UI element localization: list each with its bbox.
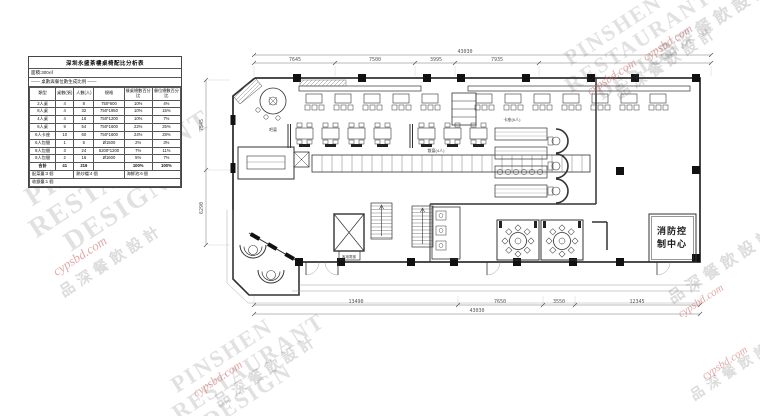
plan-rect xyxy=(533,105,538,110)
table-cell: 8 xyxy=(74,100,94,108)
table-footer-cell: 收銀臺:1 個 xyxy=(30,178,181,186)
column xyxy=(631,74,639,82)
plan-rect xyxy=(495,128,547,140)
plan-rect xyxy=(341,105,346,110)
plan-rect xyxy=(550,247,556,253)
plan-circle xyxy=(256,108,260,112)
plan-rect xyxy=(238,147,294,179)
table-row: 4人桌416750*120010%7% xyxy=(30,116,181,124)
plan-rect xyxy=(333,140,338,144)
plan-rect xyxy=(482,105,487,110)
plan-circle xyxy=(554,233,571,250)
plan-rect xyxy=(399,105,404,110)
table-cell: 6 xyxy=(74,139,94,147)
plan-rect xyxy=(377,144,388,147)
plan-rect xyxy=(455,140,460,144)
plan-rect xyxy=(476,94,492,103)
plan-line xyxy=(251,234,260,239)
plan-rect xyxy=(348,105,353,110)
plan-rect xyxy=(374,128,391,139)
plan-rect xyxy=(568,229,574,235)
plan-rect xyxy=(541,220,583,260)
plan-rect xyxy=(333,123,338,127)
cad-sheet: 深圳永盛茶樓桌椅配比分析表 面積:300㎡ —— 桌數與餐位數生成比例 —— 類… xyxy=(0,0,760,416)
analysis-table: 深圳永盛茶樓桌椅配比分析表 面積:300㎡ —— 桌數與餐位數生成比例 —— 類… xyxy=(28,56,182,188)
column xyxy=(231,163,236,173)
column xyxy=(513,258,521,266)
floor-plan: 43030 7645 7500 3995 7935 13490 7650 355… xyxy=(195,15,760,345)
column xyxy=(587,74,595,82)
table-footer-cell: 海鮮池:6 個 xyxy=(124,171,180,179)
column xyxy=(231,115,236,125)
table4-label: 散臺(4人) xyxy=(428,147,446,153)
plan-rect xyxy=(540,105,545,110)
plan-rect xyxy=(620,105,625,110)
plan-rect xyxy=(319,105,324,110)
col-header: 人數(人) xyxy=(74,88,94,101)
col-header: 桌數(張) xyxy=(56,88,74,101)
plan-rect xyxy=(429,140,434,144)
table-cell: 7% xyxy=(124,147,152,155)
table-cell: 8人包間 xyxy=(30,155,56,163)
plan-rect xyxy=(375,123,380,127)
plan-rect xyxy=(468,86,690,91)
plan-circle xyxy=(276,116,280,120)
plan-path xyxy=(255,78,700,262)
plan-rect xyxy=(621,94,637,103)
table-cell: 6人桌 xyxy=(30,124,56,132)
column xyxy=(616,258,624,266)
plan-rect xyxy=(627,105,632,110)
table-cell: 2 xyxy=(56,155,74,163)
plan-circle xyxy=(559,238,565,244)
dim-top-3: 3995 xyxy=(430,57,442,63)
dim-left-1: 7545 xyxy=(199,119,205,131)
table-cell: 2人桌 xyxy=(30,100,56,108)
floor-plan-geometry xyxy=(204,53,713,316)
column xyxy=(295,258,303,266)
plan-rect xyxy=(418,128,435,139)
plan-rect xyxy=(534,94,550,103)
plan-path xyxy=(325,262,338,275)
plan-path xyxy=(233,78,262,104)
table-cell: 10% xyxy=(124,116,152,124)
plan-rect xyxy=(359,140,364,144)
plan-rect xyxy=(349,140,354,144)
plan-rect xyxy=(524,247,530,253)
plan-rect xyxy=(429,123,434,127)
plan-rect xyxy=(562,105,567,110)
table-cell: 6人卡座 xyxy=(30,131,56,139)
table-row: 6人卡座1060750*160024%28% xyxy=(30,131,181,139)
table-cell: 750*1200 xyxy=(94,116,124,124)
table-cell: 8人包間 xyxy=(30,147,56,155)
plan-path xyxy=(657,262,670,275)
column xyxy=(358,74,366,82)
plan-rect xyxy=(576,105,581,110)
table-cell: 216 xyxy=(74,163,94,171)
table-cell: 1 xyxy=(56,139,74,147)
table-row: 2人桌48750*60010%4% xyxy=(30,100,181,108)
plan-rect xyxy=(534,221,537,228)
plan-rect xyxy=(506,229,512,235)
plan-rect xyxy=(299,86,421,91)
table-cell: 22% xyxy=(124,124,152,132)
table-cell: 2% xyxy=(124,139,152,147)
plan-rect xyxy=(307,123,312,127)
plan-rect xyxy=(563,94,579,103)
table-row: 8人桌432750*195010%15% xyxy=(30,108,181,116)
table-cell: 10% xyxy=(124,100,152,108)
plan-rect xyxy=(297,123,302,127)
plan-rect xyxy=(515,225,521,231)
table-cell: 4 xyxy=(56,100,74,108)
watermark-url: cypsbd.com xyxy=(50,233,110,280)
plan-rect xyxy=(323,140,328,144)
column xyxy=(457,74,465,82)
column xyxy=(407,258,415,266)
plan-rect xyxy=(306,94,322,103)
plan-rect xyxy=(656,105,661,110)
column xyxy=(692,74,700,82)
plan-rect xyxy=(436,211,446,220)
plan-rect xyxy=(421,144,432,147)
analysis-table-area: 面積:300㎡ xyxy=(29,69,181,78)
column xyxy=(522,74,530,82)
plan-rect xyxy=(470,128,487,139)
plan-rect xyxy=(363,105,368,110)
plan-rect xyxy=(495,147,547,159)
dim-top-1: 7645 xyxy=(289,57,301,63)
fire-control-room-label-2: 制中心 xyxy=(657,238,687,249)
plan-rect xyxy=(436,241,446,250)
table-cell: 4 xyxy=(56,108,74,116)
analysis-table-body: 2人桌48750*60010%4%8人桌432750*195010%15%4人桌… xyxy=(30,100,181,186)
plan-line xyxy=(268,244,277,249)
plan-circle xyxy=(515,238,521,244)
table-cell: 750*1950 xyxy=(94,108,124,116)
watermark-cn: 品深餐飲設計 xyxy=(55,219,167,302)
plan-rect xyxy=(419,123,424,127)
table-cell: 10% xyxy=(124,108,152,116)
table-row: 6人包間16Ø15002%3% xyxy=(30,139,181,147)
watermark-url: cypsbd.com xyxy=(700,344,750,382)
table-cell: 7% xyxy=(152,116,180,124)
table-cell: 10 xyxy=(56,131,74,139)
plan-rect xyxy=(634,105,639,110)
table-cell: 32 xyxy=(74,108,94,116)
watermark-url: cypsbd.com xyxy=(190,357,245,400)
dim-bottom-3: 3550 xyxy=(553,299,565,305)
plan-rect xyxy=(499,221,502,228)
plan-rect xyxy=(506,247,512,253)
dim-bottom-2: 7650 xyxy=(494,299,506,305)
plan-rect xyxy=(481,140,486,144)
table-cell: 750*1600 xyxy=(94,124,124,132)
plan-rect xyxy=(349,123,354,127)
table-footer-cell: 熱炒檔:4 個 xyxy=(74,171,124,179)
plan-rect xyxy=(663,105,668,110)
col-header: 類型 xyxy=(30,88,56,101)
table-cell: 100% xyxy=(152,163,180,171)
plan-rect xyxy=(649,214,696,262)
analysis-table-head: 類型桌數(張)人數(人)規格餐桌總數百分比餐位總數百分比 xyxy=(30,88,181,101)
table-cell: 16 xyxy=(74,116,94,124)
plan-rect xyxy=(471,140,476,144)
plan-rect xyxy=(296,128,313,139)
plan-rect xyxy=(550,229,556,235)
dim-bottom-1: 13490 xyxy=(348,299,363,305)
elevator-label: 客用電梯 xyxy=(342,254,356,259)
col-header: 規格 xyxy=(94,88,124,101)
table-row: 6人桌954750*160022%25% xyxy=(30,124,181,132)
plan-rect xyxy=(364,94,380,103)
plan-rect xyxy=(435,105,440,110)
dim-left-2: 6290 xyxy=(199,202,205,214)
plan-rect xyxy=(489,105,494,110)
plan-rect xyxy=(505,94,521,103)
table-cell: 5% xyxy=(124,155,152,163)
plan-rect xyxy=(300,80,346,86)
table-cell: 3% xyxy=(152,139,180,147)
plan-rect xyxy=(375,140,380,144)
table-cell: 11% xyxy=(152,147,180,155)
plan-path xyxy=(556,179,568,203)
table-cell: 7% xyxy=(152,155,180,163)
plan-circle xyxy=(510,233,527,250)
plan-rect xyxy=(598,105,603,110)
plan-rect xyxy=(334,105,339,110)
plan-rect xyxy=(436,226,446,235)
plan-rect xyxy=(445,140,450,144)
plan-path xyxy=(306,262,319,275)
table-cell: 100% xyxy=(124,163,152,171)
plan-rect xyxy=(515,251,521,257)
plan-rect xyxy=(497,220,539,260)
plan-rect xyxy=(392,105,397,110)
table-cell: 4 xyxy=(56,116,74,124)
plan-rect xyxy=(524,229,530,235)
table-cell: 54 xyxy=(74,124,94,132)
plan-rect xyxy=(543,221,546,228)
plan-rect xyxy=(547,105,552,110)
table-cell: 9 xyxy=(56,124,74,132)
plan-rect xyxy=(393,94,409,103)
table-cell: 6人包間 xyxy=(30,139,56,147)
dim-top-4: 7935 xyxy=(491,57,503,63)
plan-rect xyxy=(546,238,552,244)
plan-circle xyxy=(439,244,443,248)
table-cell: 750*600 xyxy=(94,100,124,108)
plan-rect xyxy=(422,94,438,103)
plan-circle xyxy=(439,229,443,233)
table-cell: 8人桌 xyxy=(30,108,56,116)
table-cell: 24 xyxy=(74,147,94,155)
table-cell: 25% xyxy=(152,124,180,132)
plan-rect xyxy=(605,105,610,110)
plan-path xyxy=(556,129,568,153)
plan-rect xyxy=(247,156,285,169)
plan-path xyxy=(244,247,262,256)
plan-rect xyxy=(481,123,486,127)
plan-rect xyxy=(419,140,424,144)
plan-rect xyxy=(568,247,574,253)
plan-circle xyxy=(264,115,268,119)
table-cell: 60 xyxy=(74,131,94,139)
table-footer-row: 配菜臺:3 個熱炒檔:4 個海鮮池:6 個 xyxy=(30,171,181,179)
col-header: 餐位總數百分比 xyxy=(152,88,180,101)
table-row: 8人包間216Ø16005%7% xyxy=(30,155,181,163)
col-header: 餐桌總數百分比 xyxy=(124,88,152,101)
plan-rect xyxy=(495,185,547,197)
bar-label: 吧臺 xyxy=(269,126,277,132)
plan-rect xyxy=(385,140,390,144)
table-row: 8人包間3245200*12007%11% xyxy=(30,147,181,155)
plan-rect xyxy=(305,105,310,110)
plan-path xyxy=(227,210,700,303)
column xyxy=(692,166,700,174)
plan-rect xyxy=(559,225,565,231)
plan-rect xyxy=(652,217,694,260)
table-cell: 合計 xyxy=(30,163,56,171)
table-cell: 15% xyxy=(152,108,180,116)
plan-rect xyxy=(559,251,565,257)
table-cell: 16 xyxy=(74,155,94,163)
fire-control-room-label-1: 消防控 xyxy=(657,225,687,236)
plan-rect xyxy=(447,144,458,147)
column xyxy=(293,74,301,82)
plan-rect xyxy=(377,105,382,110)
plan-rect xyxy=(444,128,461,139)
plan-rect xyxy=(518,105,523,110)
table-cell: Ø1600 xyxy=(94,155,124,163)
plan-rect xyxy=(649,105,654,110)
plan-rect xyxy=(335,94,351,103)
plan-rect xyxy=(325,144,336,147)
plan-rect xyxy=(428,105,433,110)
column xyxy=(616,167,624,175)
plan-rect xyxy=(504,105,509,110)
plan-rect xyxy=(406,105,411,110)
plan-rect xyxy=(572,238,578,244)
column xyxy=(569,258,577,266)
plan-rect xyxy=(445,123,450,127)
table-cell: 28% xyxy=(152,131,180,139)
plan-rect xyxy=(348,128,365,139)
plan-rect xyxy=(297,140,302,144)
plan-rect xyxy=(312,155,590,172)
dim-top-2: 7500 xyxy=(369,57,381,63)
analysis-table-note: —— 桌數與餐位數生成比例 —— xyxy=(29,78,181,87)
plan-rect xyxy=(421,105,426,110)
plan-rect xyxy=(312,105,317,110)
table-footer-row: 收銀臺:1 個 xyxy=(30,178,181,186)
plan-rect xyxy=(473,144,484,147)
plan-rect xyxy=(592,94,608,103)
plan-rect xyxy=(578,221,581,228)
dim-top-total: 43030 xyxy=(457,49,472,55)
plan-rect xyxy=(528,238,534,244)
plan-rect xyxy=(322,128,339,139)
plan-rect xyxy=(385,123,390,127)
table-row: 合計41216100%100% xyxy=(30,163,181,171)
plan-rect xyxy=(307,140,312,144)
plan-rect xyxy=(569,105,574,110)
table-cell: 750*1600 xyxy=(94,131,124,139)
plan-path xyxy=(487,262,500,275)
plan-rect xyxy=(299,144,310,147)
table-cell xyxy=(94,163,124,171)
plan-rect xyxy=(351,144,362,147)
plan-rect xyxy=(359,123,364,127)
table-cell: 41 xyxy=(56,163,74,171)
analysis-table-title: 深圳永盛茶樓桌椅配比分析表 xyxy=(29,57,181,69)
table-cell: Ø1500 xyxy=(94,139,124,147)
plan-rect xyxy=(323,123,328,127)
table-cell: 4% xyxy=(152,100,180,108)
plan-rect xyxy=(502,238,508,244)
plan-rect xyxy=(511,105,516,110)
analysis-table-grid: 類型桌數(張)人數(人)規格餐桌總數百分比餐位總數百分比 2人桌48750*60… xyxy=(29,87,181,187)
table-cell: 24% xyxy=(124,131,152,139)
booth-label: 卡座(6人) xyxy=(504,116,522,122)
table-cell: 5200*1200 xyxy=(94,147,124,155)
table-cell: 3 xyxy=(56,147,74,155)
table-cell: 4人桌 xyxy=(30,116,56,124)
plan-path xyxy=(262,272,280,281)
plan-line xyxy=(285,254,294,259)
table-footer-cell: 配菜臺:3 個 xyxy=(30,171,74,179)
dim-bottom-total: 43030 xyxy=(469,308,484,314)
plan-rect xyxy=(650,94,666,103)
column xyxy=(423,74,431,82)
plan-circle xyxy=(439,214,443,218)
plan-rect xyxy=(370,105,375,110)
dim-bottom-4: 12345 xyxy=(629,299,644,305)
